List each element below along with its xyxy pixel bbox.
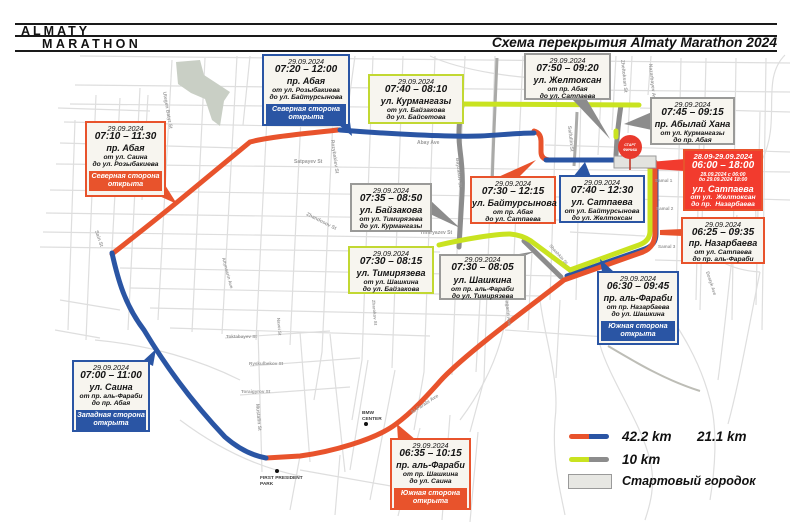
svg-text:CENTER: CENTER (362, 416, 382, 422)
svg-text:Ryskulbekov St: Ryskulbekov St (249, 361, 284, 366)
svg-text:Saifullin St: Saifullin St (566, 126, 575, 153)
svg-text:FIRST PRESIDENT: FIRST PRESIDENT (260, 475, 303, 481)
svg-text:Toktabayev St: Toktabayev St (226, 334, 257, 339)
svg-text:Samal 2: Samal 2 (656, 206, 674, 211)
svg-text:Altynsarin Ave: Altynsarin Ave (221, 257, 234, 289)
svg-text:Navoi St: Navoi St (276, 318, 283, 336)
svg-text:Zheltoksan St: Zheltoksan St (619, 60, 628, 94)
svg-text:Samal 3: Samal 3 (658, 244, 676, 249)
svg-text:Satpayev St: Satpayev St (294, 159, 323, 165)
svg-text:Zhandosov St: Zhandosov St (305, 211, 337, 232)
svg-text:Mustafin St: Mustafin St (254, 404, 262, 432)
svg-text:ФИНИШ: ФИНИШ (623, 148, 638, 152)
svg-text:Gagarin Ave: Gagarin Ave (503, 297, 512, 327)
svg-text:СТАРТ: СТАРТ (624, 143, 636, 147)
svg-text:Toraigyrov St: Toraigyrov St (241, 389, 271, 394)
svg-text:Samal 1: Samal 1 (655, 178, 673, 183)
svg-text:Dostyk Ave: Dostyk Ave (705, 271, 718, 296)
svg-text:PARK: PARK (260, 481, 274, 487)
svg-text:Abay Ave: Abay Ave (417, 140, 440, 146)
svg-text:BMW: BMW (362, 410, 374, 416)
